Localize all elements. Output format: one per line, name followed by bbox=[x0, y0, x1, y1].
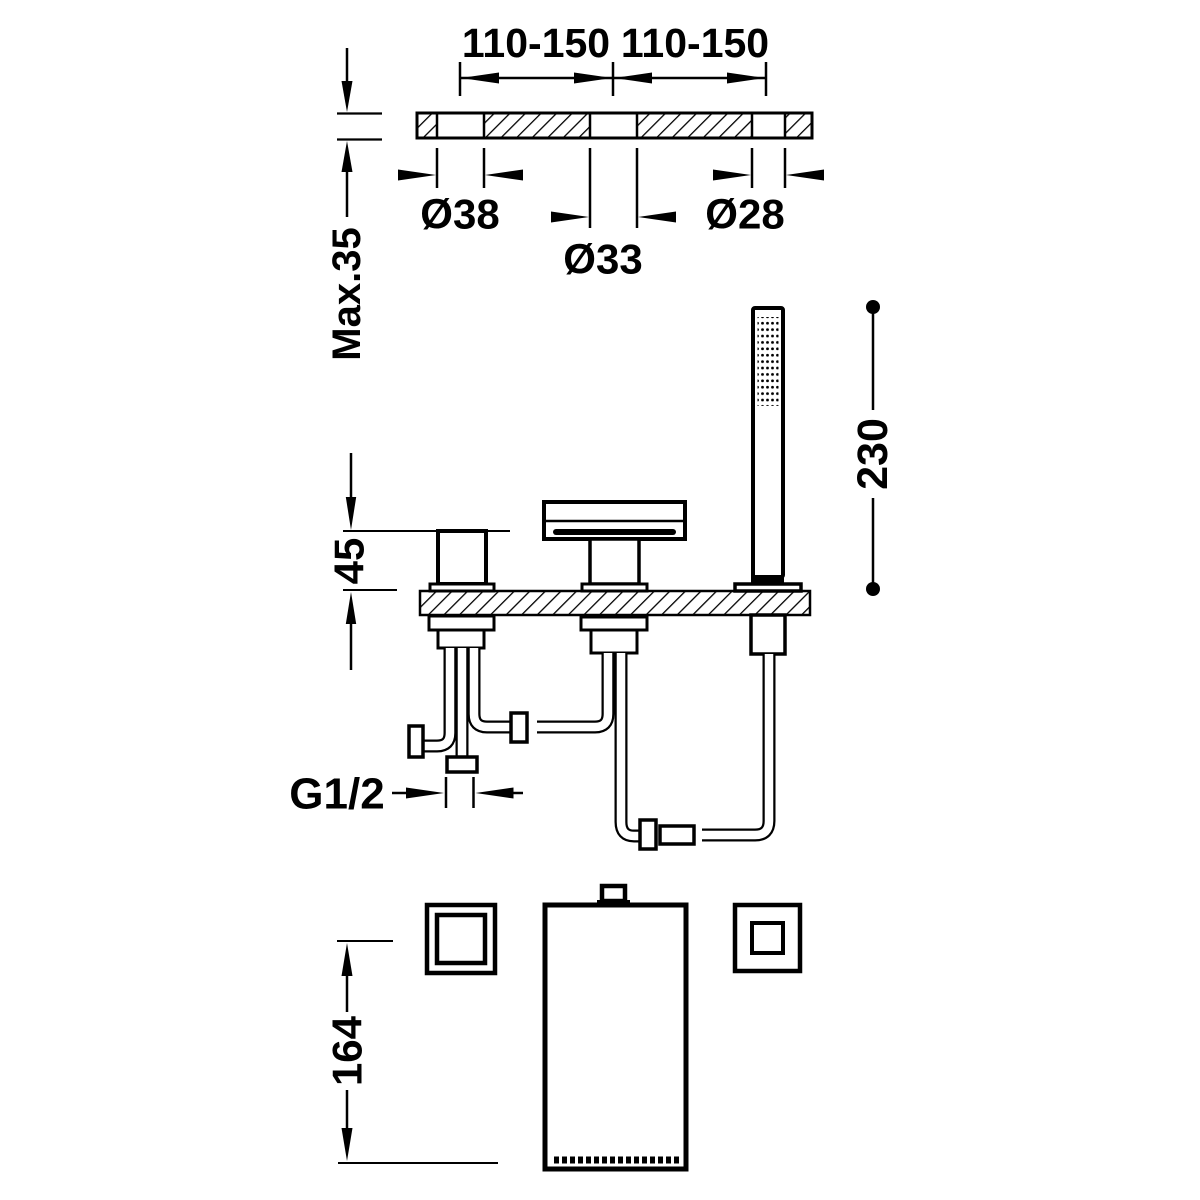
installation-diagram: 110-150 110-150 Ø38 Ø33 Ø28 Max.35 bbox=[0, 0, 1200, 1200]
dimension-arrow bbox=[346, 592, 356, 624]
max-deck-thickness-label: Max.35 bbox=[325, 227, 369, 360]
hose-coupling-nut bbox=[660, 826, 694, 844]
deck-segment bbox=[417, 113, 437, 138]
handshower-front-view bbox=[545, 886, 686, 1169]
valve-inlet-pipe-left-bore bbox=[424, 648, 450, 746]
valve-outlet-pipe bbox=[474, 648, 511, 727]
dim-thread-size: G1/2 bbox=[289, 770, 523, 819]
handshower-length-label: 164 bbox=[324, 1015, 371, 1086]
dimension-arrow bbox=[342, 141, 353, 172]
spout-supply-pipe bbox=[537, 653, 608, 727]
shower-hole-diameter-label: Ø28 bbox=[705, 191, 784, 238]
dimension-dot bbox=[866, 582, 880, 596]
spout-waterfall-slot bbox=[553, 529, 676, 535]
dim-hole-spacing: 110-150 110-150 bbox=[460, 20, 769, 96]
dim-handshower-height: 230 bbox=[849, 300, 897, 596]
hole-spacing-right-label: 110-150 bbox=[621, 20, 769, 66]
hose-connector-stem bbox=[602, 886, 625, 901]
dimension-arrow bbox=[551, 212, 589, 223]
deck-segment bbox=[785, 113, 812, 138]
handle-hole-diameter-label: Ø38 bbox=[420, 191, 499, 238]
handshower-height-label: 230 bbox=[849, 418, 897, 490]
handshower-base-plate bbox=[735, 584, 801, 591]
drawing-canvas: 110-150 110-150 Ø38 Ø33 Ø28 Max.35 bbox=[0, 0, 1200, 1200]
dim-hole-diameters: Ø38 Ø33 Ø28 bbox=[398, 148, 824, 283]
hose-connection-fitting bbox=[640, 820, 656, 849]
valve-body-under-deck bbox=[438, 630, 484, 648]
shower-supply-pipe-bore bbox=[621, 653, 640, 836]
dimension-dot bbox=[866, 300, 880, 314]
dimension-arrow bbox=[346, 497, 356, 530]
spout-stem bbox=[590, 539, 639, 584]
shower-base-plan-view bbox=[735, 905, 800, 971]
dimension-arrow bbox=[398, 170, 436, 181]
handshower-spray-face bbox=[758, 317, 779, 406]
inlet-fitting-left bbox=[409, 726, 423, 757]
spout-shank-under-deck bbox=[591, 630, 637, 653]
valve-flange-nut bbox=[429, 616, 494, 630]
dimension-arrow bbox=[727, 73, 765, 84]
handle-height-label: 45 bbox=[326, 538, 373, 585]
top-view-deck-section bbox=[417, 113, 812, 138]
dimension-arrow bbox=[342, 943, 353, 976]
dimension-arrow bbox=[614, 73, 652, 84]
shower-hose-bore bbox=[702, 654, 769, 835]
under-deck-piping bbox=[409, 648, 769, 849]
side-view: 45 230 G1/2 bbox=[289, 300, 897, 849]
dimension-arrow bbox=[461, 73, 499, 84]
dimension-arrow bbox=[574, 73, 612, 84]
deck-segment bbox=[637, 113, 752, 138]
dimension-arrow bbox=[476, 788, 514, 799]
bottom-view: 164 bbox=[324, 886, 801, 1169]
inlet-end-cap bbox=[447, 757, 477, 772]
hole-spacing-left-label: 110-150 bbox=[462, 20, 610, 66]
dimension-arrow bbox=[342, 81, 353, 112]
shower-hose bbox=[702, 654, 769, 835]
spout-flange-nut bbox=[581, 617, 647, 630]
spout-base-plate bbox=[582, 584, 647, 591]
dimension-arrow bbox=[638, 212, 676, 223]
handle-base-plate bbox=[430, 584, 494, 591]
deck-side-view bbox=[420, 591, 810, 615]
handshower-front-body bbox=[545, 905, 686, 1169]
handle-plan-view bbox=[427, 905, 495, 973]
dimension-arrow bbox=[406, 788, 444, 799]
handle-plan-inner bbox=[437, 915, 485, 963]
dim-deck-thickness: Max.35 bbox=[325, 48, 382, 361]
dimension-arrow bbox=[786, 170, 824, 181]
mixer-handle-side bbox=[438, 531, 486, 584]
spout-hole-diameter-label: Ø33 bbox=[563, 236, 642, 283]
dimension-arrow bbox=[485, 170, 523, 181]
dimension-arrow bbox=[713, 170, 751, 181]
shower-base-plan-inner bbox=[752, 923, 783, 953]
dimension-arrow bbox=[342, 1128, 353, 1161]
spout-supply-pipe-bore bbox=[537, 653, 608, 727]
outlet-fitting bbox=[511, 713, 527, 742]
shower-shank-under-deck bbox=[751, 615, 785, 654]
thread-size-label: G1/2 bbox=[289, 770, 384, 819]
deck-segment bbox=[484, 113, 590, 138]
